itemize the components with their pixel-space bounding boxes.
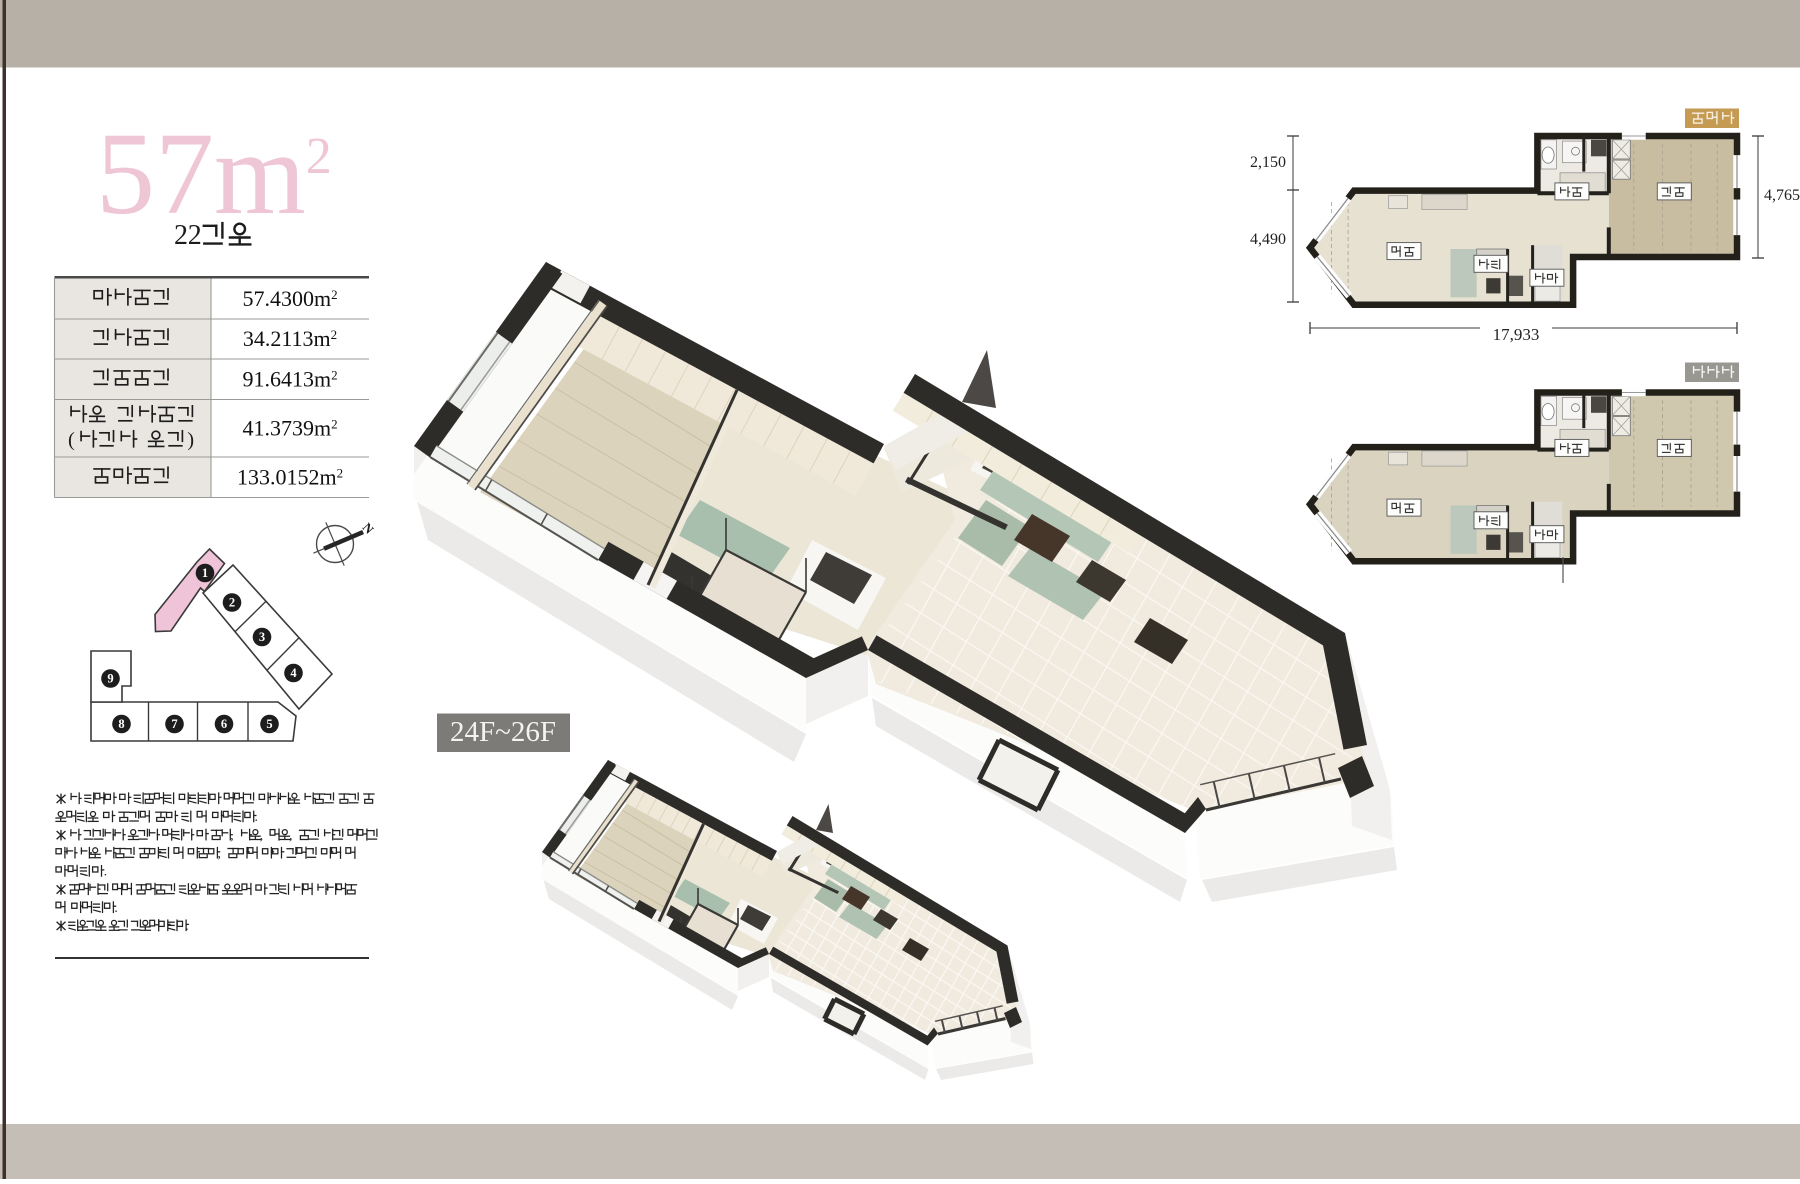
svg-text:4: 4 — [290, 666, 297, 680]
svg-text:,: , — [230, 827, 233, 842]
svg-text:.: . — [114, 900, 117, 915]
svg-text:4,765: 4,765 — [1764, 187, 1800, 204]
svg-text:5: 5 — [266, 717, 272, 731]
svg-text:,: , — [218, 845, 221, 860]
svg-text:2,150: 2,150 — [1250, 154, 1286, 171]
svg-text:,: , — [260, 827, 263, 842]
svg-text:34.2113m2: 34.2113m2 — [243, 326, 337, 351]
svg-text:41.3739m2: 41.3739m2 — [242, 415, 337, 440]
svg-text:9: 9 — [107, 672, 113, 686]
svg-text:,: , — [289, 827, 292, 842]
svg-text:.: . — [104, 864, 107, 879]
svg-text:.: . — [255, 809, 258, 824]
svg-text:.: . — [185, 918, 188, 933]
svg-text:7: 7 — [171, 717, 177, 731]
svg-text:): ) — [187, 429, 194, 451]
svg-text:2: 2 — [174, 220, 188, 251]
svg-text:17,933: 17,933 — [1493, 325, 1540, 344]
svg-text:(: ( — [68, 429, 75, 451]
svg-text:133.0152m2: 133.0152m2 — [237, 464, 343, 489]
svg-text:1: 1 — [202, 566, 208, 580]
svg-text:8: 8 — [118, 717, 124, 731]
svg-text:2: 2 — [229, 596, 235, 610]
svg-text:57m2: 57m2 — [96, 108, 332, 239]
svg-text:24F~26F: 24F~26F — [450, 716, 556, 748]
svg-text:2: 2 — [188, 220, 202, 251]
svg-text:91.6413m2: 91.6413m2 — [242, 366, 337, 391]
svg-text:57.4300m2: 57.4300m2 — [242, 286, 337, 311]
svg-text:4,490: 4,490 — [1250, 231, 1286, 248]
svg-text:3: 3 — [259, 630, 265, 644]
svg-text:6: 6 — [221, 717, 227, 731]
